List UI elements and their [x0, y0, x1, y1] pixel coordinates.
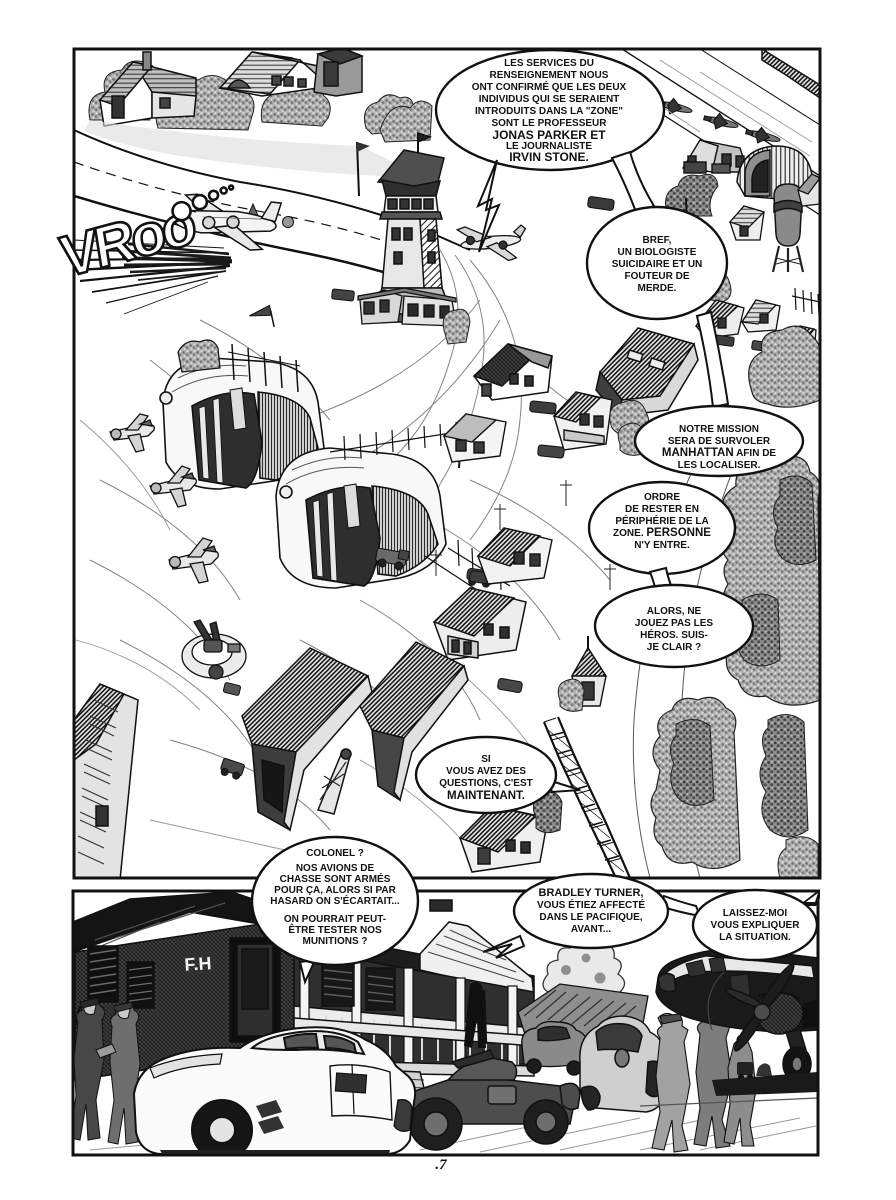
svg-text:MAINTENANT.: MAINTENANT.: [447, 790, 525, 802]
svg-text:ZONE. PERSONNE: ZONE. PERSONNE: [613, 527, 711, 539]
svg-text:SI: SI: [481, 754, 491, 765]
svg-text:JOUEZ PAS LES: JOUEZ PAS LES: [635, 618, 713, 629]
svg-text:RENSEIGNEMENT NOUS: RENSEIGNEMENT NOUS: [490, 70, 609, 81]
svg-text:AVANT...: AVANT...: [571, 924, 611, 935]
svg-text:DE RESTER EN: DE RESTER EN: [625, 504, 699, 515]
svg-text:FOUTEUR DE: FOUTEUR DE: [625, 271, 690, 282]
svg-text:CHASSE SONT ARMÉS: CHASSE SONT ARMÉS: [280, 872, 391, 885]
svg-text:PÉRIPHÉRIE DE LA: PÉRIPHÉRIE DE LA: [615, 514, 708, 527]
svg-text:INTRODUITS DANS LA "ZONE": INTRODUITS DANS LA "ZONE": [475, 106, 623, 117]
svg-text:F.H: F.H: [184, 953, 212, 975]
svg-text:ON POURRAIT PEUT-: ON POURRAIT PEUT-: [284, 914, 386, 925]
svg-text:JE CLAIR ?: JE CLAIR ?: [647, 642, 701, 653]
svg-text:LAISSEZ-MOI: LAISSEZ-MOI: [723, 908, 788, 919]
svg-text:LES SERVICES DU: LES SERVICES DU: [504, 58, 594, 69]
svg-text:VOUS AVEZ DES: VOUS AVEZ DES: [446, 766, 526, 777]
svg-text:SERA DE SURVOLER: SERA DE SURVOLER: [668, 436, 771, 447]
svg-text:JONAS PARKER ET: JONAS PARKER ET: [492, 128, 606, 142]
svg-text:BRADLEY TURNER,: BRADLEY TURNER,: [539, 887, 644, 899]
svg-text:N'Y ENTRE.: N'Y ENTRE.: [634, 540, 690, 551]
svg-text:.7: .7: [435, 1157, 447, 1173]
svg-text:DANS LE PACIFIQUE,: DANS LE PACIFIQUE,: [539, 912, 642, 923]
svg-text:QUESTIONS, C'EST: QUESTIONS, C'EST: [439, 778, 533, 789]
svg-text:UN BIOLOGISTE: UN BIOLOGISTE: [618, 247, 697, 258]
svg-text:HÉROS. SUIS-: HÉROS. SUIS-: [640, 628, 708, 641]
svg-text:ALORS, NE: ALORS, NE: [647, 606, 702, 617]
svg-text:POUR ÇA, ALORS SI PAR: POUR ÇA, ALORS SI PAR: [274, 885, 396, 896]
svg-text:INDIVIDUS QUI SE SERAIENT: INDIVIDUS QUI SE SERAIENT: [479, 94, 620, 105]
svg-text:VOUS EXPLIQUER: VOUS EXPLIQUER: [711, 920, 801, 931]
svg-text:MANHATTAN AFIN DE: MANHATTAN AFIN DE: [662, 447, 777, 459]
svg-text:ONT CONFIRMÉ QUE LES DEUX: ONT CONFIRMÉ QUE LES DEUX: [472, 80, 627, 93]
svg-text:ORDRE: ORDRE: [644, 492, 680, 503]
svg-text:LES LOCALISER.: LES LOCALISER.: [678, 460, 761, 471]
svg-text:ÊTRE TESTER NOS: ÊTRE TESTER NOS: [288, 923, 382, 936]
svg-text:COLONEL ?: COLONEL ?: [306, 848, 364, 859]
svg-text:HASARD ON S'ÉCARTAIT...: HASARD ON S'ÉCARTAIT...: [270, 894, 400, 907]
svg-text:VOUS ÉTIEZ AFFECTÉ: VOUS ÉTIEZ AFFECTÉ: [537, 898, 645, 911]
svg-text:LA SITUATION.: LA SITUATION.: [719, 932, 791, 943]
svg-text:NOTRE MISSION: NOTRE MISSION: [679, 424, 759, 435]
svg-text:BREF,: BREF,: [643, 235, 672, 246]
svg-text:MERDE.: MERDE.: [638, 283, 677, 294]
svg-text:SUICIDAIRE ET UN: SUICIDAIRE ET UN: [612, 259, 703, 270]
svg-text:NOS AVIONS DE: NOS AVIONS DE: [296, 863, 375, 874]
svg-text:MUNITIONS ?: MUNITIONS ?: [303, 936, 368, 947]
svg-text:IRVIN STONE.: IRVIN STONE.: [509, 150, 589, 164]
